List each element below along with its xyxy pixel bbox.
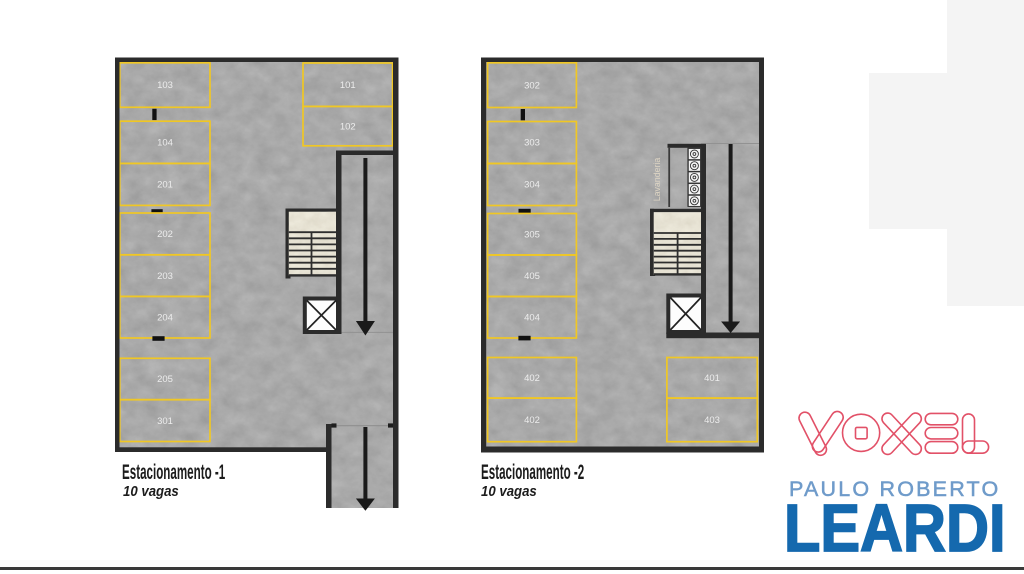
svg-text:301: 301: [157, 416, 173, 427]
svg-text:302: 302: [524, 80, 540, 91]
svg-text:201: 201: [157, 180, 173, 191]
svg-text:403: 403: [704, 415, 720, 426]
svg-text:402: 402: [524, 373, 540, 384]
svg-text:402: 402: [524, 415, 540, 426]
svg-text:202: 202: [157, 229, 173, 240]
svg-text:304: 304: [524, 180, 540, 191]
svg-text:203: 203: [157, 271, 173, 282]
svg-text:404: 404: [524, 313, 540, 324]
svg-text:Lavanderia: Lavanderia: [652, 158, 662, 202]
svg-text:204: 204: [157, 312, 173, 323]
svg-text:305: 305: [524, 229, 540, 240]
svg-text:401: 401: [704, 373, 720, 384]
svg-text:205: 205: [157, 374, 173, 385]
svg-text:303: 303: [524, 138, 540, 149]
svg-text:101: 101: [340, 80, 356, 91]
svg-text:104: 104: [157, 138, 173, 149]
svg-text:103: 103: [157, 80, 173, 91]
svg-text:405: 405: [524, 271, 540, 282]
svg-text:102: 102: [340, 121, 356, 132]
